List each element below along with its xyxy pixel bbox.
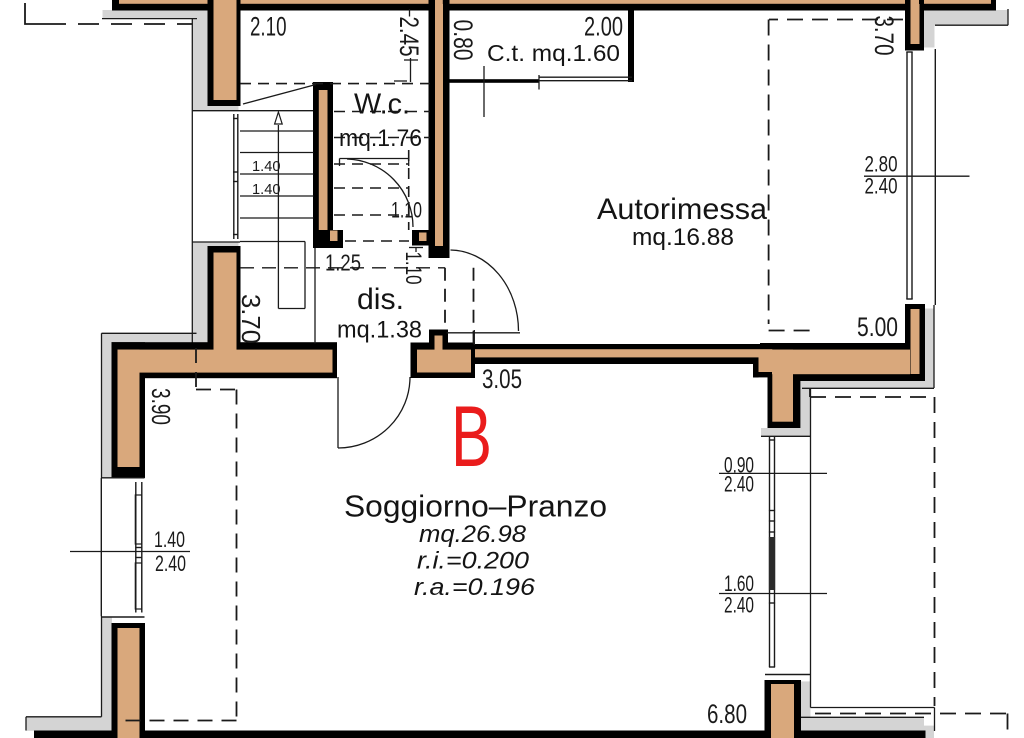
svg-text:2.40: 2.40 [865, 174, 898, 199]
svg-text:1.25: 1.25 [325, 250, 361, 276]
svg-text:2.40: 2.40 [724, 593, 754, 618]
svg-text:Soggiorno–Pranzo: Soggiorno–Pranzo [344, 489, 607, 524]
svg-text:2.10: 2.10 [250, 12, 287, 42]
svg-text:mq.1.38: mq.1.38 [337, 317, 422, 344]
svg-text:6.80: 6.80 [707, 699, 747, 729]
svg-text:3.70: 3.70 [236, 294, 266, 344]
svg-text:r.a.=0.196: r.a.=0.196 [414, 574, 536, 601]
svg-text:1.40: 1.40 [154, 527, 185, 552]
svg-text:1.40: 1.40 [252, 158, 281, 175]
svg-text:3.90: 3.90 [146, 388, 176, 425]
svg-text:1.40: 1.40 [252, 181, 281, 198]
svg-text:2.45: 2.45 [394, 17, 424, 57]
svg-text:mq.1.76: mq.1.76 [339, 125, 422, 152]
svg-text:2.40: 2.40 [724, 472, 754, 497]
svg-text:1.10: 1.10 [391, 198, 422, 223]
svg-text:2.40: 2.40 [155, 551, 186, 576]
svg-text:1.10: 1.10 [401, 252, 426, 285]
svg-text:W.c.: W.c. [354, 89, 410, 121]
svg-text:mq.26.98: mq.26.98 [419, 521, 527, 548]
svg-text:Autorimessa: Autorimessa [597, 193, 767, 226]
svg-text:2.00: 2.00 [584, 12, 623, 42]
svg-text:dis.: dis. [357, 283, 404, 316]
svg-text:mq.16.88: mq.16.88 [632, 224, 734, 251]
svg-text:5.00: 5.00 [857, 312, 898, 342]
svg-text:C.t. mq.1.60: C.t. mq.1.60 [487, 40, 620, 66]
svg-text:3.70: 3.70 [869, 16, 899, 56]
svg-text:0.80: 0.80 [448, 20, 478, 61]
svg-text:B: B [451, 389, 492, 485]
svg-text:r.i.=0.200: r.i.=0.200 [417, 548, 530, 575]
